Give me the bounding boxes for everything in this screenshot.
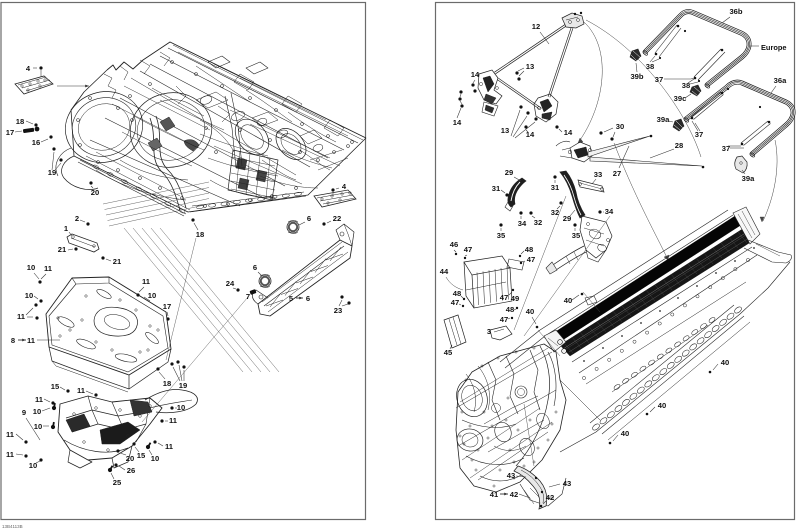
svg-text:35: 35	[497, 231, 506, 240]
svg-text:29: 29	[563, 214, 571, 223]
svg-text:13B4113B: 13B4113B	[2, 524, 23, 529]
svg-text:40: 40	[526, 307, 534, 316]
svg-text:11: 11	[142, 277, 151, 286]
svg-text:3: 3	[487, 327, 491, 336]
svg-text:10: 10	[177, 403, 185, 412]
svg-text:15: 15	[137, 451, 146, 460]
svg-text:Europe: Europe	[761, 43, 786, 52]
svg-text:20: 20	[91, 188, 99, 197]
svg-text:41: 41	[490, 490, 499, 499]
svg-text:39b: 39b	[630, 72, 643, 81]
svg-text:18: 18	[196, 230, 204, 239]
svg-text:45: 45	[444, 348, 453, 357]
svg-text:17: 17	[6, 128, 14, 137]
svg-text:11: 11	[165, 442, 174, 451]
svg-text:34: 34	[605, 207, 614, 216]
svg-text:47: 47	[500, 315, 508, 324]
svg-text:31: 31	[492, 184, 501, 193]
svg-text:12: 12	[532, 22, 540, 31]
svg-text:37: 37	[722, 144, 730, 153]
svg-text:36b: 36b	[729, 7, 742, 16]
svg-text:39a: 39a	[657, 115, 670, 124]
svg-text:37: 37	[655, 75, 663, 84]
svg-text:35: 35	[572, 231, 581, 240]
svg-text:11: 11	[169, 416, 178, 425]
svg-text:40: 40	[621, 429, 629, 438]
svg-text:11: 11	[77, 386, 86, 395]
svg-text:30: 30	[616, 122, 624, 131]
svg-text:2: 2	[75, 214, 79, 223]
svg-text:39c: 39c	[674, 94, 687, 103]
svg-text:43: 43	[563, 479, 571, 488]
svg-text:14: 14	[471, 70, 480, 79]
svg-text:15: 15	[51, 382, 60, 391]
svg-text:10: 10	[148, 291, 156, 300]
svg-text:14: 14	[453, 118, 462, 127]
svg-text:6: 6	[306, 294, 310, 303]
svg-text:22: 22	[333, 214, 341, 223]
svg-text:20: 20	[126, 454, 134, 463]
svg-text:13: 13	[526, 62, 534, 71]
svg-text:47: 47	[527, 255, 535, 264]
svg-text:10: 10	[29, 461, 37, 470]
svg-text:36a: 36a	[774, 76, 787, 85]
svg-text:24: 24	[226, 279, 235, 288]
svg-text:31: 31	[551, 183, 560, 192]
svg-text:8: 8	[11, 336, 15, 345]
svg-text:7: 7	[246, 292, 250, 301]
svg-text:11: 11	[17, 312, 26, 321]
svg-text:11: 11	[27, 336, 36, 345]
svg-text:47: 47	[451, 298, 459, 307]
svg-text:44: 44	[440, 267, 449, 276]
svg-text:28: 28	[675, 141, 683, 150]
svg-text:42: 42	[510, 490, 518, 499]
svg-text:27: 27	[613, 169, 621, 178]
svg-text:25: 25	[113, 478, 122, 487]
svg-text:10: 10	[151, 454, 159, 463]
svg-text:40: 40	[658, 401, 666, 410]
svg-text:11: 11	[6, 450, 15, 459]
svg-text:21: 21	[58, 245, 67, 254]
svg-text:6: 6	[307, 214, 311, 223]
svg-text:19: 19	[179, 381, 187, 390]
svg-text:10: 10	[25, 291, 33, 300]
svg-text:17: 17	[163, 302, 171, 311]
svg-text:43: 43	[507, 471, 515, 480]
svg-text:11: 11	[44, 264, 53, 273]
svg-text:46: 46	[450, 240, 458, 249]
svg-text:21: 21	[113, 257, 122, 266]
svg-text:40: 40	[721, 358, 729, 367]
svg-text:26: 26	[127, 466, 135, 475]
svg-text:48: 48	[525, 245, 533, 254]
svg-text:6: 6	[253, 263, 257, 272]
svg-text:33: 33	[594, 170, 602, 179]
svg-text:38: 38	[646, 62, 654, 71]
svg-text:18: 18	[16, 117, 24, 126]
svg-text:32: 32	[551, 208, 559, 217]
svg-text:10: 10	[27, 263, 35, 272]
svg-text:34: 34	[518, 219, 527, 228]
svg-text:49: 49	[511, 294, 519, 303]
svg-text:37: 37	[695, 130, 703, 139]
svg-text:32: 32	[534, 218, 542, 227]
svg-text:11: 11	[35, 395, 44, 404]
svg-text:48: 48	[506, 305, 514, 314]
svg-text:9: 9	[22, 408, 26, 417]
svg-text:42: 42	[546, 493, 554, 502]
svg-text:47: 47	[500, 293, 508, 302]
svg-text:10: 10	[34, 422, 42, 431]
svg-text:13: 13	[501, 126, 509, 135]
svg-text:40: 40	[564, 296, 572, 305]
svg-text:47: 47	[464, 245, 472, 254]
svg-text:23: 23	[334, 306, 342, 315]
svg-text:18: 18	[163, 379, 171, 388]
svg-text:10: 10	[33, 407, 41, 416]
svg-text:39a: 39a	[742, 174, 755, 183]
svg-text:16: 16	[32, 138, 40, 147]
svg-text:14: 14	[564, 128, 573, 137]
svg-text:29: 29	[505, 168, 513, 177]
svg-text:48: 48	[453, 289, 461, 298]
svg-text:11: 11	[6, 430, 15, 439]
